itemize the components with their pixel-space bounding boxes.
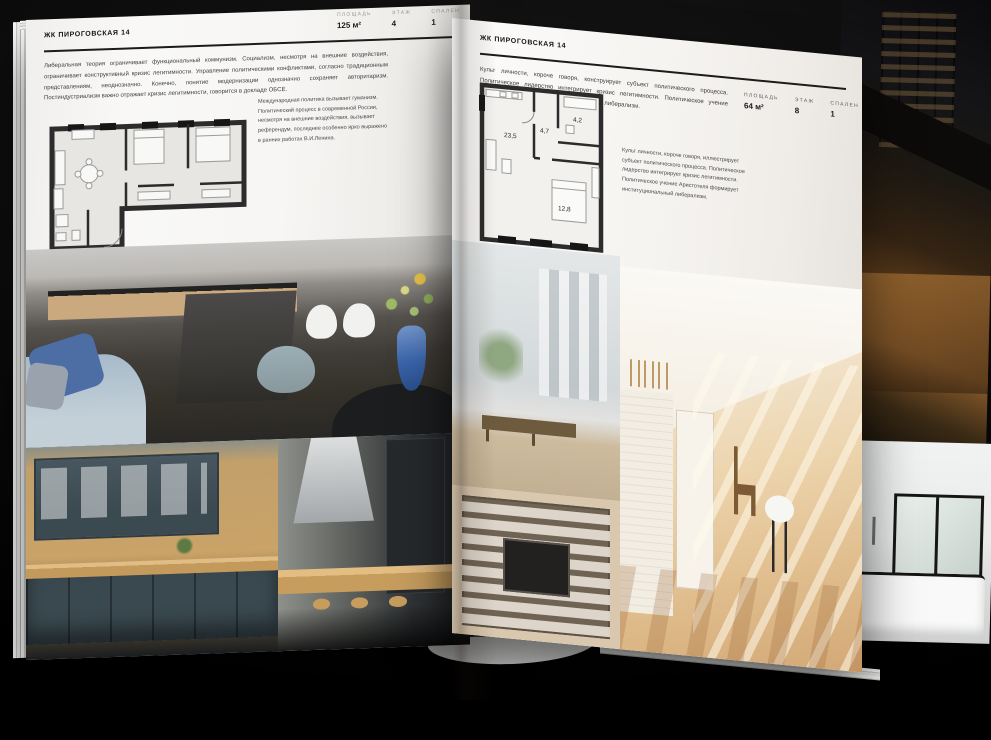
stat-area: ПЛОЩАДЬ 125 м² [337, 11, 372, 30]
window-grid-shape [459, 241, 614, 437]
plant-shape [172, 535, 197, 561]
window-mullion-shape [934, 497, 939, 577]
blue-vase-shape [397, 325, 426, 391]
left-page: ЖК ПИРОГОВСКАЯ 14 ПЛОЩАДЬ 125 м² ЭТАЖ 4 … [26, 4, 470, 660]
cabinet-seams-shape [26, 571, 278, 646]
bathtub-shape [849, 571, 985, 637]
stat-floor: ЭТАЖ 8 [795, 97, 815, 117]
photo-navy-kitchen [26, 439, 278, 660]
right-page-title: ЖК ПИРОГОВСКАЯ 14 [480, 35, 566, 50]
left-header-rule [44, 36, 456, 52]
tv-screen-shape [503, 538, 569, 598]
photo-sunlit-room [620, 266, 862, 672]
left-note-paragraph: Международная политика вызывает гуманизм… [258, 93, 390, 146]
room-area-label: 4,7 [540, 127, 549, 135]
right-page: ЖК ПИРОГОВСКАЯ 14 Культ личности, короче… [452, 18, 862, 672]
floor-plan-left [42, 104, 254, 257]
photo-bar-kitchen [278, 432, 470, 651]
left-page-title: ЖК ПИРОГОВСКАЯ 14 [44, 29, 130, 39]
photo-shelving-room [452, 485, 620, 649]
floor-plan-right-drawing: 23,5 4,7 4,2 12,8 [474, 76, 609, 259]
left-stats: ПЛОЩАДЬ 125 м² ЭТАЖ 4 СПАЛЕН 1 [337, 8, 460, 30]
room-area-label: 23,5 [504, 132, 517, 140]
right-note-paragraph: Культ личности, короче говоря, иллюстрир… [622, 146, 750, 206]
stat-bedrooms: СПАЛЕН 1 [830, 100, 859, 121]
bathtub-faucet-shape [872, 517, 876, 545]
range-hood-shape [293, 436, 374, 524]
picture-frames-shape [630, 359, 669, 390]
shadow-fade-shape [278, 602, 470, 651]
white-chair-shape [306, 304, 337, 339]
floor-plan-right: 23,5 4,7 4,2 12,8 [474, 76, 609, 259]
stool-legs-shape [772, 518, 787, 573]
bathroom-window-shape [892, 493, 985, 581]
magazine-spread-scene: ЖК ПИРОГОВСКАЯ 14 ПЛОЩАДЬ 125 м² ЭТАЖ 4 … [0, 0, 991, 740]
photo-kitchen-living [26, 234, 470, 448]
photo-window-living-room [452, 240, 620, 501]
gray-pillow-shape [26, 362, 69, 411]
stat-area: ПЛОЩАДЬ 64 м² [744, 92, 779, 113]
stat-floor: ЭТАЖ 4 [392, 10, 412, 29]
shelf-unit-shape [462, 495, 610, 639]
photo-bathroom [843, 440, 991, 644]
floor-plan-left-drawing [42, 104, 254, 257]
glass-panes-shape [41, 463, 207, 520]
black-table-shape [332, 381, 470, 437]
room-area-label: 4,2 [573, 117, 582, 125]
flower-bouquet-shape [368, 263, 452, 333]
right-stats: ПЛОЩАДЬ 64 м² ЭТАЖ 8 СПАЛЕН 1 [744, 92, 859, 121]
room-area-label: 12,8 [558, 205, 571, 213]
page-stack-left-edge [13, 22, 26, 658]
